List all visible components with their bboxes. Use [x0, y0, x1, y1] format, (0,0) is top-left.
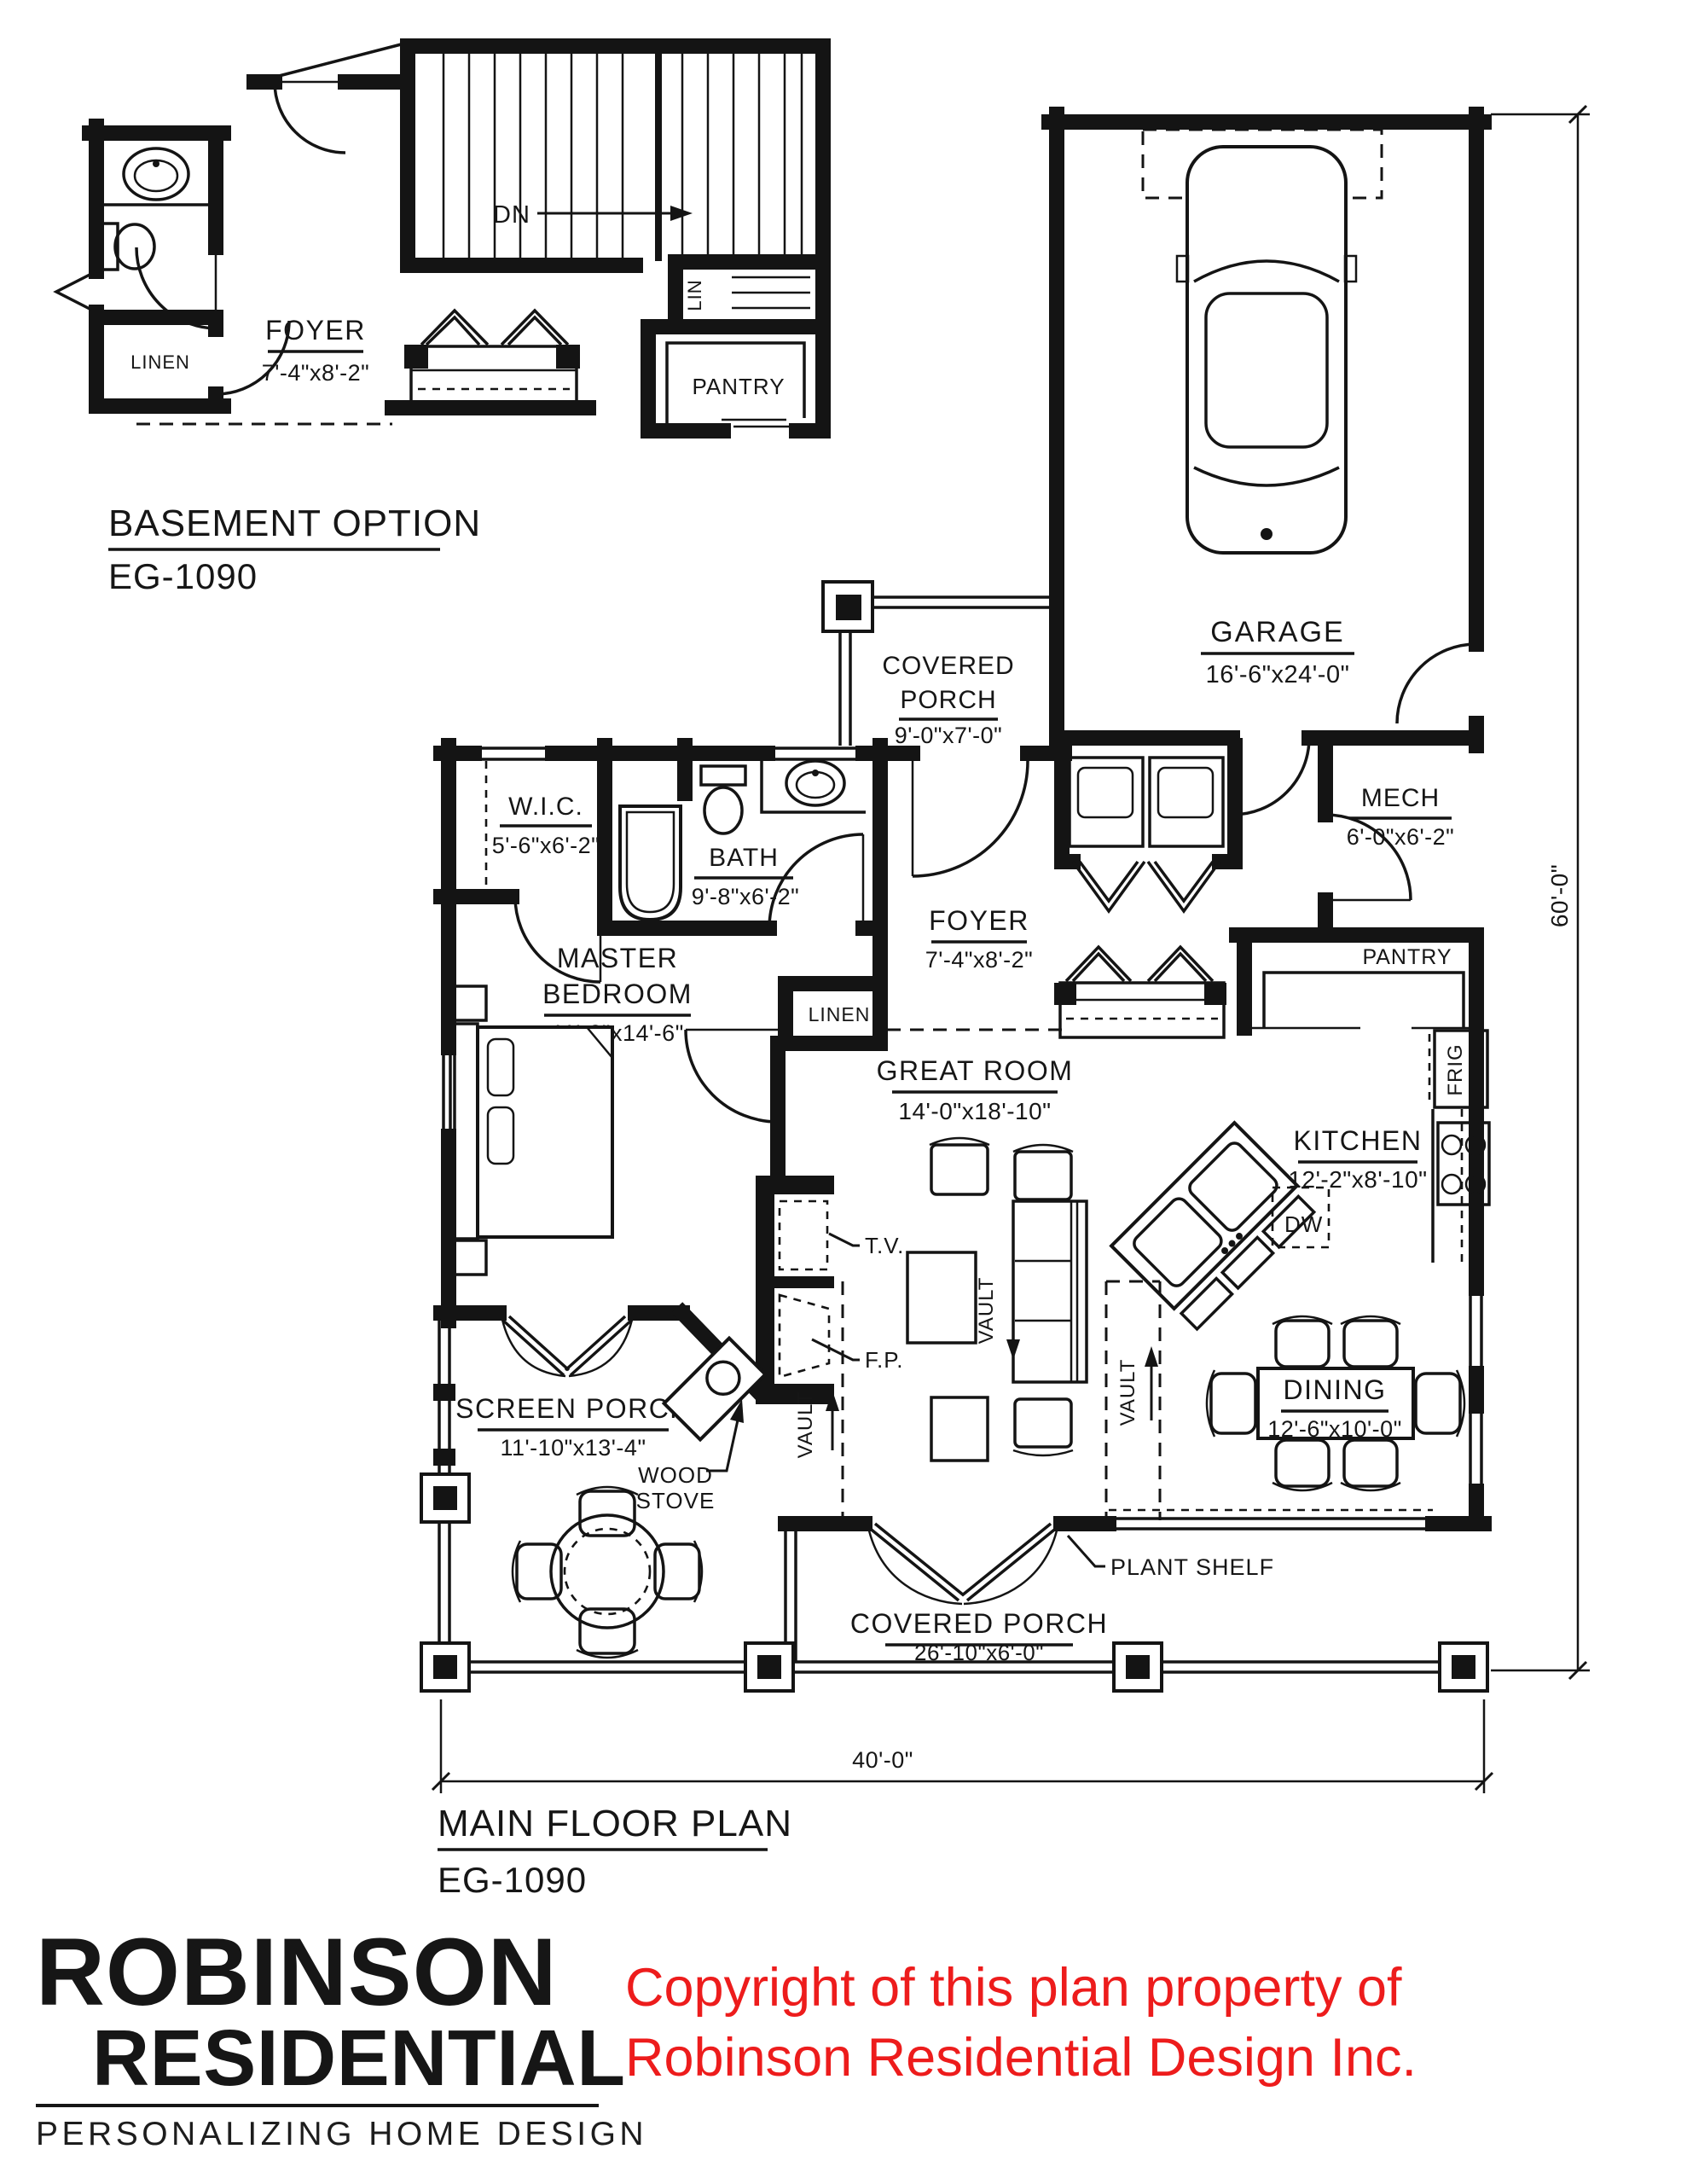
great-room: GREAT ROOM 14'-0"x18'-10": [794, 1055, 1160, 1520]
wic-dims: 5'-6"x6'-2": [492, 833, 600, 858]
vault-label-3: VAULT: [794, 1391, 839, 1458]
window: [1109, 1519, 1433, 1529]
porch-post: [836, 595, 861, 620]
porch-post: [1126, 1655, 1150, 1679]
frig-label: FRIG: [1444, 1043, 1467, 1095]
armchair: [1015, 1152, 1071, 1199]
tv-niche: [774, 1194, 836, 1276]
pantry-shelf-outline: [1264, 973, 1464, 1028]
porch-post: [1452, 1655, 1475, 1679]
bench: [1060, 983, 1224, 1037]
plant-shelf-leader: [1068, 1536, 1105, 1566]
window: [1470, 1406, 1481, 1491]
master-bedroom: MASTER BEDROOM 11'-2"x14'-6": [441, 943, 757, 1391]
dining-label: DINING: [1284, 1374, 1387, 1405]
laundry: [1062, 746, 1235, 911]
car-emblem: [1261, 528, 1272, 540]
basement-linen-label: LINEN: [130, 351, 190, 373]
main-pantry: PANTRY: [1237, 935, 1476, 1028]
copyright-line2: Robinson Residential Design Inc.: [625, 2024, 1687, 2094]
bath-dims: 9'-8"x6'-2": [692, 884, 800, 909]
covered-porch-top-l2: PORCH: [900, 686, 996, 714]
porch-post: [433, 1655, 457, 1679]
logo-tagline: PERSONALIZING HOME DESIGN: [36, 2116, 624, 2153]
bench: [411, 346, 577, 408]
dining-dims: 12'-6"x10'-0": [1267, 1416, 1402, 1442]
kitchen: FRIG DW KITCHEN 12'-2"x8'-10": [1111, 1031, 1489, 1330]
great-room-label: GREAT ROOM: [877, 1055, 1074, 1086]
basement-foyer-dims: 7'-4"x8'-2": [262, 360, 370, 386]
bed: [450, 986, 612, 1275]
door-swing: [868, 1527, 1058, 1604]
coat-hooks: [421, 311, 488, 345]
garage-side-door-arc: [1397, 644, 1476, 723]
basement-bench: [392, 311, 588, 408]
wic-label: W.I.C.: [508, 793, 583, 821]
coat-hooks: [1148, 947, 1213, 981]
basement-pantry-label: PANTRY: [692, 374, 785, 399]
fp-label: F.P.: [865, 1347, 903, 1373]
vault-label-1: VAULT: [975, 1273, 1020, 1360]
window: [768, 748, 863, 759]
main-foyer-dims: 7'-4"x8'-2": [925, 947, 1034, 973]
garage-dims: 16'-6"x24'-0": [1206, 661, 1350, 688]
main-floor-plan: GARAGE 16'-6"x24'-0" COVERED PORCH 9'-0"…: [421, 106, 1590, 1900]
kitchen-dims: 12'-2"x8'-10": [1288, 1166, 1427, 1193]
dining: DINING 12'-6"x10'-0": [1207, 1316, 1464, 1490]
linen-label: LINEN: [809, 1003, 871, 1025]
covered-porch-bottom-label: COVERED PORCH: [850, 1608, 1108, 1639]
overall-height-dim: 60'-0": [1546, 864, 1573, 927]
wood-stove-l1: WOOD: [638, 1462, 713, 1488]
robinson-residential-logo: ROBINSON RESIDENTIAL PERSONALIZING HOME …: [36, 1925, 624, 2153]
coat-hooks: [1066, 947, 1131, 981]
mech: MECH 6'-0"x6'-2": [1325, 738, 1454, 935]
covered-porch-top-dims: 9'-0"x7'-0": [895, 723, 1003, 748]
svg-text:VAULT: VAULT: [1116, 1359, 1139, 1426]
window: [474, 748, 553, 759]
bedroom-door-arc: [686, 1030, 778, 1122]
shelf-lines: [732, 277, 810, 308]
armchair: [931, 1145, 988, 1194]
basement-lin-closet: LIN: [675, 262, 823, 327]
copyright-notice: Copyright of this plan property of Robin…: [625, 1954, 1687, 2094]
master-l1: MASTER: [557, 943, 678, 973]
kitchen-label: KITCHEN: [1294, 1125, 1423, 1156]
dimension-60: 60'-0": [1491, 106, 1590, 1679]
toilet: [704, 787, 742, 834]
vault-lines: [843, 1281, 1160, 1520]
mattress: [478, 1027, 612, 1237]
toilet: [115, 224, 154, 269]
main-title: MAIN FLOOR PLAN: [438, 1803, 792, 1844]
garage-label: GARAGE: [1210, 616, 1344, 648]
svg-text:VAULT: VAULT: [794, 1391, 817, 1459]
tv-label: T.V.: [865, 1233, 904, 1258]
ottoman: [907, 1252, 976, 1343]
faucet-dot: [812, 770, 819, 776]
overall-width-dim: 40'-0": [852, 1747, 913, 1773]
basement-foyer-label: FOYER: [265, 315, 366, 346]
porch-post: [433, 1486, 457, 1510]
car-body: [1187, 147, 1346, 553]
copyright-line1: Copyright of this plan property of: [625, 1954, 1687, 2024]
wood-stove: [664, 1339, 766, 1440]
basement-plan: LINEN DN FOYER 7'-4"x8'-2": [56, 43, 823, 596]
sofa: [1013, 1201, 1087, 1382]
chair: [931, 1397, 988, 1461]
bath-label: BATH: [709, 844, 779, 872]
basement-lin-label: LIN: [684, 279, 705, 311]
armchair: [1015, 1399, 1071, 1447]
bifold-door: [1148, 862, 1220, 911]
main-pantry-label: PANTRY: [1362, 945, 1452, 969]
porch-post: [757, 1655, 781, 1679]
tv-fp-wall: T.V. F.P.: [756, 1176, 904, 1404]
main-title-code: EG-1090: [438, 1860, 587, 1900]
door-arc: [769, 834, 863, 928]
door-arc: [275, 82, 345, 153]
covered-porch-bottom-dims: 26'-10"x6'-0": [914, 1640, 1044, 1665]
dimension-40: 40'-0": [432, 1699, 1493, 1793]
screen-porch-label: SCREEN PORCH: [455, 1393, 691, 1424]
basement-dn-label: DN: [493, 201, 530, 229]
basement-linen-closet: LINEN: [96, 317, 289, 406]
floor-plan-drawing: LINEN DN FOYER 7'-4"x8'-2": [0, 0, 1687, 2184]
front-door-arc: [913, 761, 1028, 876]
main-foyer: FOYER 7'-4"x8'-2": [887, 905, 1062, 1030]
logo-line2: RESIDENTIAL: [92, 2020, 624, 2095]
window: [1470, 1288, 1481, 1374]
basement-pantry: PANTRY: [648, 327, 823, 431]
plan-sheet: LINEN DN FOYER 7'-4"x8'-2": [0, 0, 1687, 2184]
hall-linen: LINEN: [686, 928, 880, 1182]
garage-house-door-arc: [1232, 738, 1309, 815]
covered-porch-top-l1: COVERED: [882, 652, 1014, 680]
faucet-dot: [153, 160, 159, 167]
mech-label: MECH: [1361, 784, 1440, 812]
plant-shelf-label: PLANT SHELF: [1110, 1554, 1274, 1580]
basement-title-code: EG-1090: [108, 556, 258, 596]
car: [1177, 147, 1356, 553]
svg-text:VAULT: VAULT: [975, 1277, 998, 1345]
screen-porch: SCREEN PORCH 11'-10"x13'-4" WOOD STOVE: [421, 1321, 796, 1669]
basement-title: BASEMENT OPTION: [108, 502, 481, 544]
bathtub: [620, 806, 681, 920]
bypass-doors: [722, 420, 798, 427]
screen-porch-dims: 11'-10"x13'-4": [500, 1435, 646, 1461]
logo-line1: ROBINSON: [36, 1925, 624, 2020]
coat-hooks: [501, 311, 568, 345]
great-room-dims: 14'-0"x18'-10": [898, 1098, 1051, 1124]
bifold-door: [1073, 862, 1145, 911]
master-l2: BEDROOM: [542, 979, 693, 1009]
rear-wall: PLANT SHELF: [786, 1510, 1484, 1604]
mud-bench: [1054, 947, 1226, 1037]
covered-porch-top: COVERED PORCH 9'-0"x7'-0": [823, 582, 1057, 748]
wood-stove-l2: STOVE: [636, 1488, 716, 1513]
dw-label: DW: [1284, 1211, 1323, 1237]
logo-divider: [36, 2104, 599, 2107]
toilet-tank: [701, 766, 745, 785]
main-foyer-label: FOYER: [929, 905, 1029, 936]
bath: BATH 9'-8"x6'-2": [605, 746, 880, 928]
mech-dims: 6'-0"x6'-2": [1347, 824, 1455, 850]
vault-label-2: VAULT: [1116, 1346, 1158, 1426]
garage: GARAGE 16'-6"x24'-0": [1049, 114, 1484, 815]
stair-treads: [443, 53, 802, 268]
